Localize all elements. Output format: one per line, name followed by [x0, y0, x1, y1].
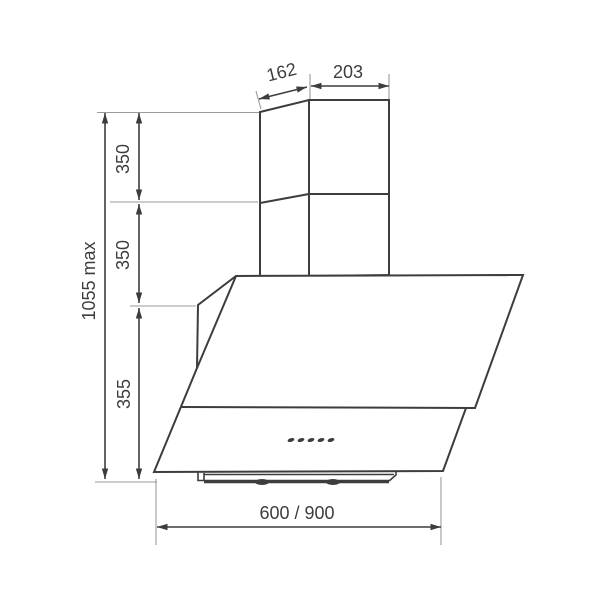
dim-label-duct-depth: 162: [265, 59, 299, 86]
dim-label-body-width: 600 / 900: [259, 503, 334, 523]
base-lamp-left: [255, 479, 269, 485]
hood-dimension-diagram: 162 203 350 350 355 1055 max 600 / 900: [0, 0, 600, 600]
dim-label-lower-duct-height: 350: [113, 240, 133, 270]
technical-drawing: 162 203 350 350 355 1055 max 600 / 900: [0, 0, 600, 600]
base-lamp-right: [326, 479, 340, 485]
dim-label-duct-width: 203: [333, 62, 363, 82]
hood-body: [154, 275, 523, 472]
chimney-right-face: [309, 100, 389, 276]
dim-label-body-height: 355: [114, 379, 134, 409]
base-left-lip: [198, 472, 204, 481]
dim-label-total-height: 1055 max: [79, 241, 99, 320]
hood-silhouette: [154, 275, 523, 472]
chimney-left-face: [260, 100, 309, 276]
dim-label-upper-duct-height: 350: [113, 144, 133, 174]
base-outline: [204, 472, 396, 481]
base-tray: [198, 472, 396, 485]
dim-duct-depth-line: [259, 87, 307, 99]
chimney: [260, 100, 389, 276]
glass-bottom-edge: [181, 407, 475, 408]
